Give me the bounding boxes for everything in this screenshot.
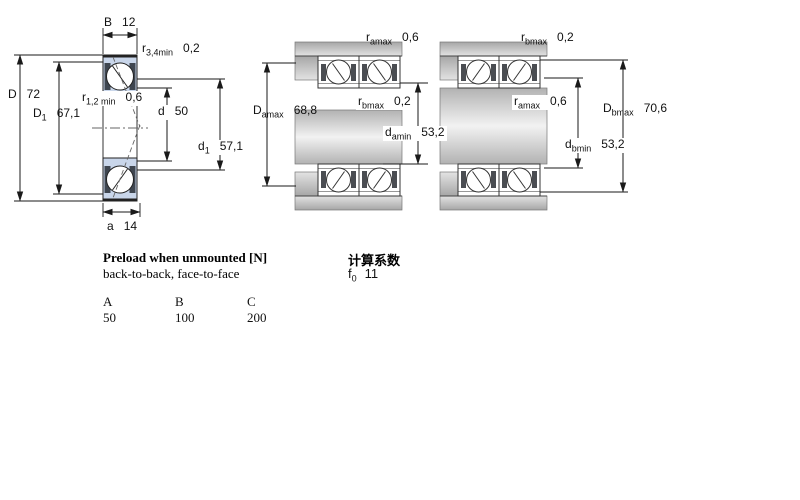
label-subscript: bmin: [572, 143, 592, 153]
label-subscript: amax: [262, 109, 284, 119]
label-value: 0,6: [126, 90, 143, 104]
label-b-dbmin: dbmin53,2: [563, 138, 627, 153]
preload-column-b: B: [175, 294, 247, 310]
label-a-rbmax: rbmax0,2: [356, 95, 413, 110]
label-subscript: 0: [352, 274, 357, 284]
label-b-Dbmax: Dbmax70,6: [603, 102, 667, 117]
label-diameter-D1: D167,1: [33, 107, 80, 122]
bearing-technical-drawing: B12 r3,4min0,2 D72 D167,1 r1,2 min0,6 d5…: [0, 0, 800, 500]
label-symbol: D: [8, 87, 17, 101]
label-value: 11: [365, 266, 379, 281]
label-bore-d: d50: [156, 105, 190, 120]
label-subscript: bmax: [612, 107, 634, 117]
label-b-rbmax: rbmax0,2: [521, 31, 574, 46]
label-symbol: d: [565, 137, 572, 151]
label-symbol: D: [33, 106, 42, 120]
label-subscript: bmax: [362, 100, 384, 110]
label-value: 0,6: [402, 30, 419, 44]
label-value: 67,1: [57, 106, 80, 120]
label-symbol: B: [104, 15, 112, 29]
label-a-Damax: Damax68,8: [253, 104, 317, 119]
label-value: 0,2: [394, 94, 411, 108]
label-value: 57,1: [220, 139, 243, 153]
label-a-ramax: ramax0,6: [366, 31, 419, 46]
label-width-B: B12: [104, 16, 135, 31]
label-subscript: 1,2 min: [86, 96, 116, 106]
label-value: 0,2: [183, 41, 200, 55]
label-chamfer-r34: r3,4min0,2: [142, 42, 200, 57]
label-offset-a: a14: [107, 220, 137, 235]
calculation-f0: f011: [348, 267, 378, 284]
label-value: 72: [27, 87, 40, 101]
label-outer-diameter-D: D72: [8, 88, 40, 103]
label-value: 68,8: [294, 103, 317, 117]
label-b-ramax: ramax0,6: [512, 95, 569, 110]
label-value: 70,6: [644, 101, 667, 115]
label-value: 53,2: [421, 125, 444, 139]
label-subscript: 1: [42, 112, 47, 122]
label-symbol: D: [603, 101, 612, 115]
preload-value-a: 50: [103, 310, 175, 326]
preload-value-c: 200: [247, 310, 319, 326]
label-subscript: 3,4min: [146, 47, 173, 57]
preload-subtitle: back-to-back, face-to-face: [103, 266, 239, 282]
label-subscript: amin: [392, 131, 412, 141]
preload-column-c: C: [247, 294, 319, 310]
preload-title: Preload when unmounted [N]: [103, 250, 267, 266]
label-subscript: bmax: [525, 36, 547, 46]
label-diameter-d1: d157,1: [196, 140, 245, 155]
label-value: 0,6: [550, 94, 567, 108]
label-value: 12: [122, 15, 135, 29]
label-subscript: amax: [370, 36, 392, 46]
label-value: 50: [175, 104, 188, 118]
preload-column-a: A: [103, 294, 175, 310]
label-symbol: d: [198, 139, 205, 153]
preload-value-b: 100: [175, 310, 247, 326]
preload-column-headers: A B C: [103, 294, 319, 310]
label-value: 53,2: [601, 137, 624, 151]
label-a-damin: damin53,2: [383, 126, 447, 141]
label-subscript: amax: [518, 100, 540, 110]
label-symbol: D: [253, 103, 262, 117]
label-value: 14: [124, 219, 137, 233]
preload-values: 50 100 200: [103, 310, 319, 326]
label-symbol: d: [158, 104, 165, 118]
label-subscript: 1: [205, 145, 210, 155]
label-symbol: a: [107, 219, 114, 233]
label-symbol: d: [385, 125, 392, 139]
label-chamfer-r12: r1,2 min0,6: [80, 91, 144, 106]
label-value: 0,2: [557, 30, 574, 44]
